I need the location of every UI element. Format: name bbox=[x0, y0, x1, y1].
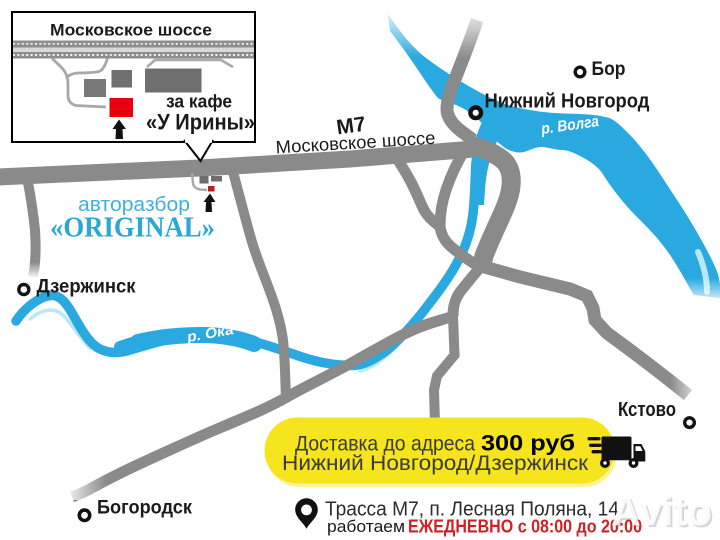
svg-text:за кафе: за кафе bbox=[166, 92, 232, 112]
svg-text:Богородск: Богородск bbox=[97, 497, 192, 519]
svg-text:ЕЖЕДНЕВНО с 08:00 до 20:00: ЕЖЕДНЕВНО с 08:00 до 20:00 bbox=[408, 517, 642, 537]
svg-text:Бор: Бор bbox=[592, 59, 626, 80]
svg-text:Московское шоссе: Московское шоссе bbox=[50, 21, 212, 40]
svg-text:Нижний Новгород: Нижний Новгород bbox=[485, 89, 650, 112]
svg-text:Нижний Новгород/Дзержинск: Нижний Новгород/Дзержинск bbox=[282, 452, 589, 475]
svg-text:«У Ирины»: «У Ирины» bbox=[146, 110, 255, 135]
svg-text:Кстово: Кстово bbox=[618, 399, 676, 421]
svg-text:Дзержинск: Дзержинск bbox=[37, 276, 136, 298]
svg-text:работаем: работаем bbox=[327, 518, 405, 536]
svg-text:«ORIGINAL»: «ORIGINAL» bbox=[50, 212, 215, 244]
svg-text:Avito: Avito bbox=[611, 488, 712, 534]
